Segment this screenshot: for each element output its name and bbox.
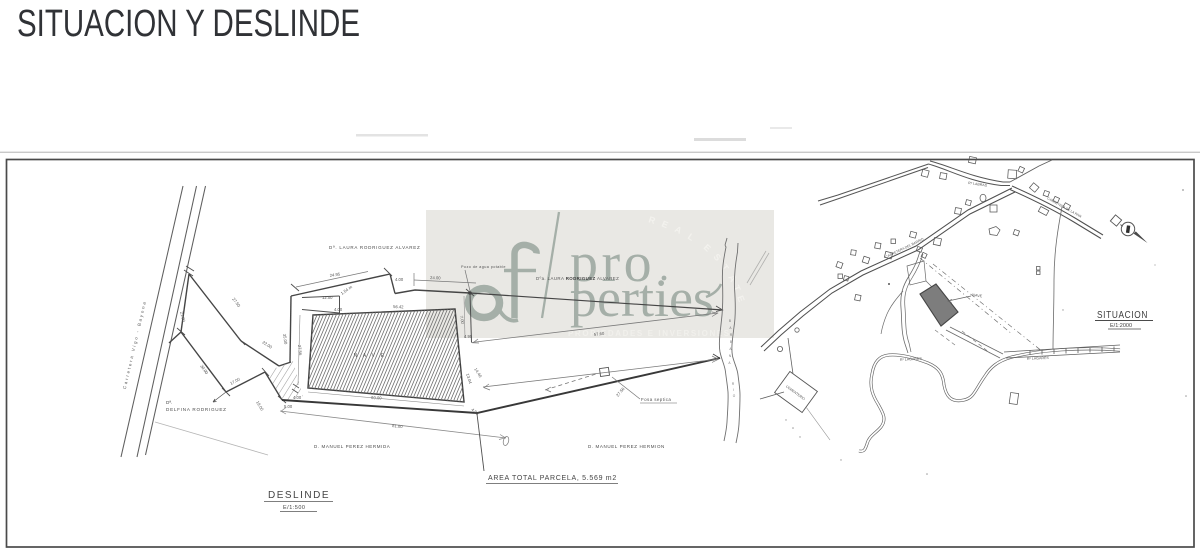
svg-text:56.42: 56.42	[393, 304, 404, 309]
svg-text:SITUACION: SITUACION	[1097, 309, 1148, 321]
svg-text:SITUACION Y DESLINDE: SITUACION Y DESLINDE	[17, 3, 360, 45]
svg-text:B: B	[729, 319, 731, 323]
svg-text:DESLINDE: DESLINDE	[268, 490, 330, 501]
svg-text:Dª.: Dª.	[166, 400, 172, 405]
svg-text:4.00: 4.00	[395, 277, 404, 282]
svg-text:5.00: 5.00	[284, 404, 293, 409]
svg-text:DELFINA RODRIGUEZ: DELFINA RODRIGUEZ	[166, 407, 227, 412]
svg-text:D. MANUEL PEREZ HERMIDA: D. MANUEL PEREZ HERMIDA	[314, 444, 390, 449]
svg-text:AREA TOTAL PARCELA, 5.569 m2: AREA TOTAL PARCELA, 5.569 m2	[488, 475, 617, 482]
svg-text:4.00: 4.00	[334, 307, 343, 312]
svg-text:E/1:2000: E/1:2000	[1110, 323, 1132, 329]
svg-text:4.00: 4.00	[293, 395, 302, 400]
svg-text:24.00: 24.00	[430, 275, 441, 281]
svg-text:I: I	[733, 388, 734, 392]
svg-text:PROPIEDADES E INVERSIONES: PROPIEDADES E INVERSIONES	[568, 329, 731, 338]
svg-text:Dºa. LAURA RODRIGUEZ ALVARE: Dºa. LAURA RODRIGUEZ ALVAREZ	[536, 276, 619, 281]
svg-text:N A V E: N A V E	[354, 353, 387, 359]
svg-text:Pozo de agua potable: Pozo de agua potable	[461, 265, 506, 269]
svg-text:E/1:500: E/1:500	[283, 505, 305, 511]
svg-text:Fosa septica: Fosa septica	[641, 397, 671, 402]
svg-text:B: B	[730, 340, 732, 344]
svg-text:D. MANUEL PEREZ HERMION: D. MANUEL PEREZ HERMION	[588, 444, 665, 449]
svg-text:Dª. LAURA RODRIGUEZ ALVAREZ: Dª. LAURA RODRIGUEZ ALVAREZ	[329, 245, 421, 250]
svg-text:12.00: 12.00	[322, 295, 333, 300]
svg-text:4.95: 4.95	[464, 334, 473, 339]
